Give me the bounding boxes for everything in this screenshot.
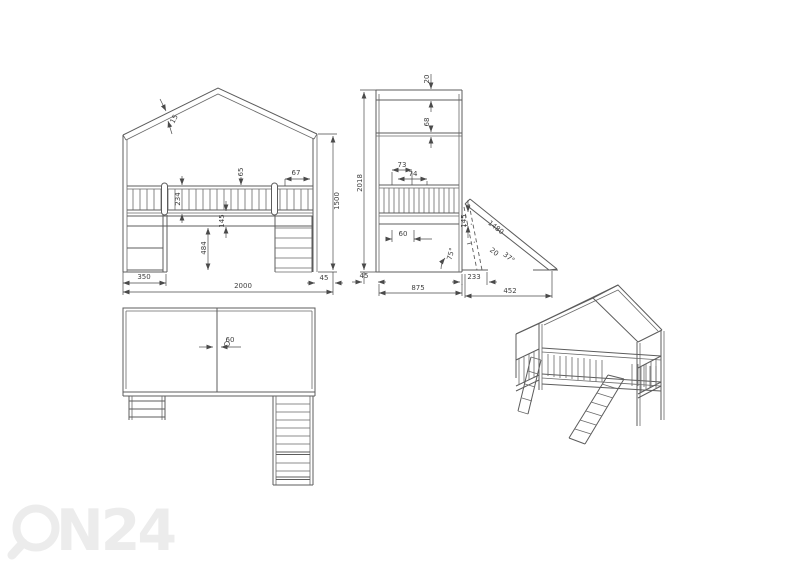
iso-slide [569,375,624,444]
front-slide-steps [275,216,312,272]
front-roof [123,88,317,140]
dim-slat-pitch-a: 73 [398,161,407,169]
front-walls [123,134,317,272]
dim-side-height: 1500 [333,192,341,210]
dim-overall-height: 2018 [356,174,364,192]
dim-post-width: 45 [320,274,329,282]
dim-rail-cap: 65 [237,168,245,177]
dim-slat-width: 60 [399,230,408,238]
dim-slide-angle: 37° [501,251,516,265]
iso-roof [516,285,662,342]
front-ladder [123,215,167,272]
dim-under-bed-clearance: 484 [200,241,208,255]
plan-slide [273,396,313,485]
side-view: 20 68 2018 73 74 145 60 75° 1480 2 [348,58,583,310]
plan-ladder [129,396,165,420]
side-panel [376,90,462,272]
side-dimensions: 20 68 2018 73 74 145 60 75° 1480 2 [352,74,552,298]
dim-frame-height: 145 [218,214,226,227]
dim-slat-pitch-b: 74 [409,170,418,178]
technical-drawing-page: 15 65 67 234 145 484 350 2000 45 1500 [0,0,792,566]
top-view: 60 [105,297,340,497]
plan-gap-dimension: 60 [199,336,241,347]
watermark-text: N24 [56,498,175,564]
dim-ridge-board: 20 [423,75,431,84]
dim-ladder-angle: 75° [446,247,457,261]
dim-roof-beam: 68 [423,118,431,127]
side-ladder [462,204,488,270]
dim-rail-height: 234 [174,192,182,206]
dim-slide-offset: 233 [467,273,480,281]
dim-roof-thickness: 15 [169,113,180,125]
iso-ladder [518,357,541,414]
dim-ladder-width: 350 [137,273,150,281]
dim-side-frame-height: 145 [460,214,468,227]
dim-panel-gap: 60 [226,336,235,344]
dim-slide-thickness: 20 [488,246,500,258]
dim-overall-depth: 875 [411,284,424,292]
watermark-logo: N24 [6,494,196,566]
dim-overall-width: 2000 [234,282,252,290]
isometric-view [505,278,725,478]
plan-bed [123,308,315,396]
magnifier-o-icon [12,509,56,556]
front-view: 15 65 67 234 145 484 350 2000 45 1500 [60,58,360,310]
dim-rail-gap-right: 67 [292,169,301,177]
